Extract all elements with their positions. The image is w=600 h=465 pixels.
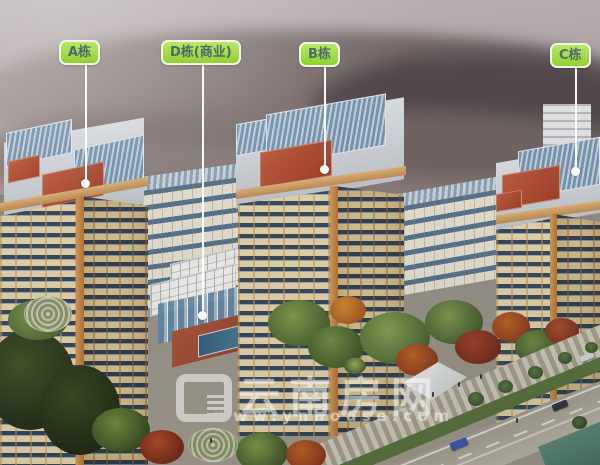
leader-line-a — [85, 61, 87, 181]
palm-tree — [344, 358, 366, 374]
tower-b — [236, 104, 408, 440]
pedestrian — [516, 418, 518, 423]
tree-cluster — [236, 432, 288, 465]
circular-garden-plaza — [24, 296, 72, 332]
street-tree — [528, 366, 543, 379]
leader-dot-c — [571, 167, 580, 176]
circular-garden-plaza — [188, 428, 238, 462]
leader-dot-b — [320, 165, 329, 174]
autumn-tree — [140, 430, 184, 464]
autumn-tree — [330, 296, 366, 324]
label-building-a: A栋 — [59, 40, 100, 65]
label-building-d: D栋(商业) — [161, 40, 241, 65]
pedestrian — [458, 382, 460, 387]
street-tree — [468, 392, 484, 406]
leader-line-b — [324, 63, 326, 167]
label-building-c: C栋 — [550, 43, 591, 68]
pedestrian — [432, 392, 434, 397]
label-building-b: B栋 — [299, 42, 340, 67]
leader-line-d — [202, 61, 204, 313]
pedestrian — [210, 438, 212, 443]
street-tree — [572, 416, 587, 429]
leader-line-c — [575, 64, 577, 169]
leader-dot-a — [81, 179, 90, 188]
street-tree — [498, 380, 513, 393]
street-tree — [558, 352, 572, 364]
pedestrian — [480, 374, 482, 379]
leader-dot-d — [198, 311, 207, 320]
street-tree — [585, 342, 598, 353]
autumn-tree — [286, 440, 326, 465]
brochure-photo: 云南房网 www.ynhouse.com A栋 D栋(商业) B栋 C栋 — [0, 0, 600, 465]
